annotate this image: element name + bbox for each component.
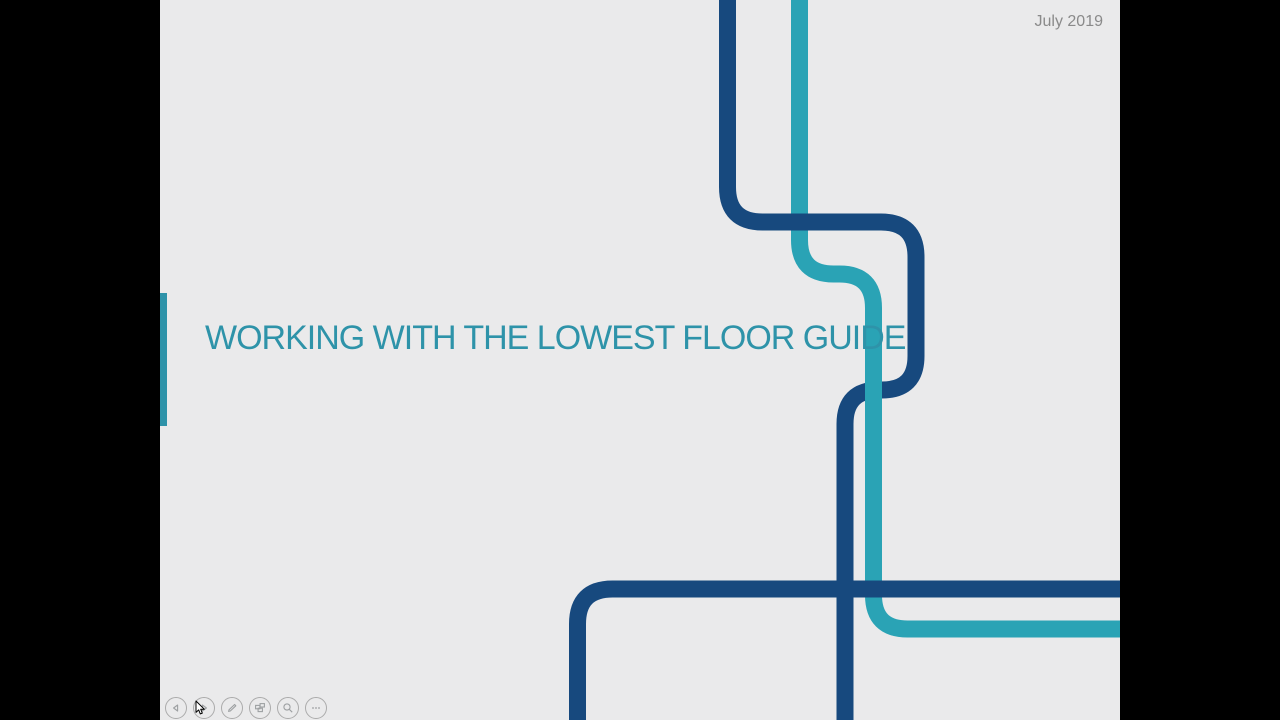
dark-pipe-top (728, 0, 917, 720)
pen-icon (226, 702, 238, 714)
pen-tools-button[interactable] (221, 697, 243, 719)
slide-date: July 2019 (1035, 13, 1104, 31)
more-options-button[interactable] (305, 697, 327, 719)
zoom-slide-button[interactable] (277, 697, 299, 719)
magnifier-icon (282, 702, 294, 714)
mouse-cursor (195, 700, 207, 717)
see-all-slides-icon (254, 702, 266, 714)
pipe-decoration (160, 0, 1120, 720)
previous-arrow-icon (170, 702, 182, 714)
slide-title: WORKING WITH THE LOWEST FLOOR GUIDE (205, 320, 905, 357)
see-all-slides-button[interactable] (249, 697, 271, 719)
slideshow-toolbar (165, 697, 327, 719)
previous-slide-button[interactable] (165, 697, 187, 719)
slide-canvas: WORKING WITH THE LOWEST FLOOR GUIDE July… (160, 0, 1120, 720)
more-options-icon (310, 702, 322, 714)
title-accent-bar (160, 293, 167, 426)
presentation-stage-letterbox: WORKING WITH THE LOWEST FLOOR GUIDE July… (0, 0, 1280, 720)
